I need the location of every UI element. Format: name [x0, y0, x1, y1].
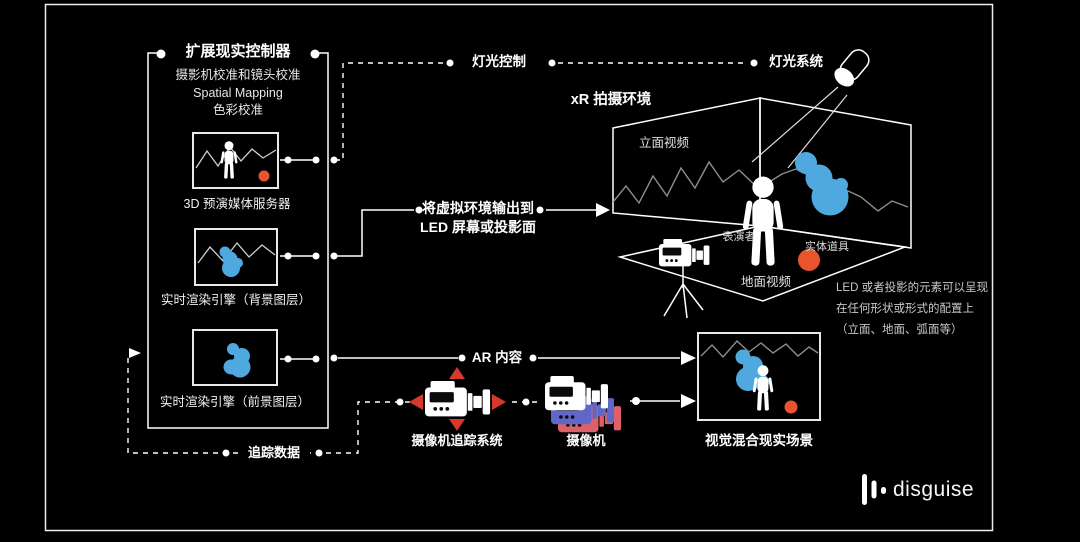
prop-dot-icon — [785, 401, 798, 414]
ar-content-label: AR 内容 — [472, 351, 522, 365]
performer-label: 表演者 — [723, 232, 756, 243]
camera-icon — [545, 376, 621, 432]
diagram-art — [0, 0, 1080, 542]
media-server-thumbnail — [193, 133, 338, 188]
fg-engine-thumbnail — [193, 330, 338, 385]
led-output-label-2: LED 屏幕或投影面 — [420, 220, 536, 234]
stage-camera-icon — [659, 239, 709, 318]
camera-tracking-icon — [409, 367, 506, 431]
lighting-system-label: 灯光系统 — [769, 55, 823, 69]
camera-tracking-label: 摄像机追踪系统 — [411, 434, 502, 447]
controller-title: 扩展现实控制器 — [185, 44, 290, 59]
spotlight-icon — [831, 46, 874, 91]
blue-blob-icon — [224, 343, 251, 378]
person-icon — [220, 141, 237, 178]
tracking-data-label: 追踪数据 — [248, 446, 300, 459]
arrow-icon — [596, 203, 610, 217]
bg-engine-thumbnail — [195, 229, 338, 285]
arrow-icon — [681, 394, 696, 408]
physical-prop-label: 实体道具 — [805, 242, 849, 253]
xr-stage-title: xR 拍摄环境 — [571, 93, 652, 108]
controller-subtitle-1: 摄影机校准和镜头校准 — [175, 69, 300, 82]
bg-engine-label: 实时渲染引擎（背景图层） — [161, 294, 311, 307]
camera-label: 摄像机 — [566, 434, 605, 447]
lighting-control-label: 灯光控制 — [472, 55, 526, 69]
wall-video-label: 立面视频 — [639, 137, 689, 150]
blue-blob-icon — [795, 152, 849, 216]
floor-video-label: 地面视频 — [741, 276, 791, 289]
stage-note-line-1: LED 或者投影的元素可以呈现 — [836, 283, 988, 295]
disguise-logo-icon — [862, 474, 886, 505]
controller-subtitle-3: 色彩校准 — [213, 104, 263, 117]
controller-subtitle-2: Spatial Mapping — [193, 87, 283, 100]
performer-icon — [742, 177, 783, 266]
stage-left-wall — [613, 98, 760, 226]
lighting-control-line — [335, 60, 758, 161]
stage-note-line-3: （立面、地面、弧面等） — [836, 325, 963, 337]
prop-dot-icon — [259, 171, 270, 182]
disguise-logo-text: disguise — [893, 478, 974, 502]
led-output-label-1: 将虚拟环境输出到 — [422, 201, 534, 215]
arrow-icon — [681, 351, 696, 365]
composite-scene-label: 视觉混合现实场景 — [705, 434, 813, 448]
fg-engine-label: 实时渲染引擎（前景图层） — [160, 396, 310, 409]
diagram-canvas: 扩展现实控制器 摄影机校准和镜头校准 Spatial Mapping 色彩校准 … — [0, 0, 1080, 542]
media-server-label: 3D 预演媒体服务器 — [184, 198, 291, 211]
composite-box — [698, 333, 820, 420]
stage-note-line-2: 在任何形状或形式的配置上 — [836, 304, 974, 316]
arrow-icon — [129, 348, 141, 358]
